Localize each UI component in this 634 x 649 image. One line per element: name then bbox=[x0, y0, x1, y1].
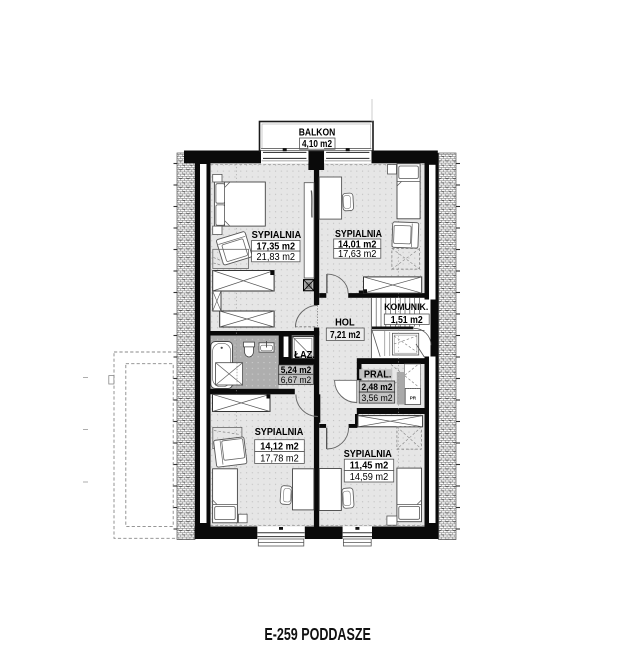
svg-text:PR: PR bbox=[410, 396, 417, 401]
svg-text:E-259 PODDASZE: E-259 PODDASZE bbox=[264, 624, 371, 644]
svg-text:7,21 m2: 7,21 m2 bbox=[330, 330, 361, 341]
svg-text:14,59 m2: 14,59 m2 bbox=[350, 472, 389, 483]
svg-text:2,48 m2: 2,48 m2 bbox=[362, 382, 393, 393]
svg-text:SYPIALNIA: SYPIALNIA bbox=[255, 427, 304, 438]
svg-text:6,67 m2: 6,67 m2 bbox=[281, 375, 312, 386]
svg-text:17,63 m2: 17,63 m2 bbox=[338, 249, 377, 260]
svg-text:SYPIALNIA: SYPIALNIA bbox=[252, 230, 302, 241]
svg-text:SYPIALNIA: SYPIALNIA bbox=[344, 449, 393, 460]
svg-text:11,45 m2: 11,45 m2 bbox=[350, 461, 389, 472]
svg-text:BALKON: BALKON bbox=[299, 126, 336, 138]
svg-text:KOMUNIK.: KOMUNIK. bbox=[384, 302, 428, 313]
svg-text:SYPIALNIA: SYPIALNIA bbox=[335, 229, 383, 240]
svg-text:21,83 m2: 21,83 m2 bbox=[257, 252, 296, 263]
svg-text:PRAL.: PRAL. bbox=[364, 369, 392, 380]
svg-text:HOL: HOL bbox=[335, 318, 355, 329]
svg-text:1,51 m2: 1,51 m2 bbox=[391, 315, 423, 326]
svg-text:14,12 m2: 14,12 m2 bbox=[260, 442, 299, 453]
svg-text:3,56 m2: 3,56 m2 bbox=[362, 393, 393, 404]
svg-text:ŁAZ.: ŁAZ. bbox=[294, 350, 315, 361]
svg-text:17,78 m2: 17,78 m2 bbox=[260, 453, 299, 464]
